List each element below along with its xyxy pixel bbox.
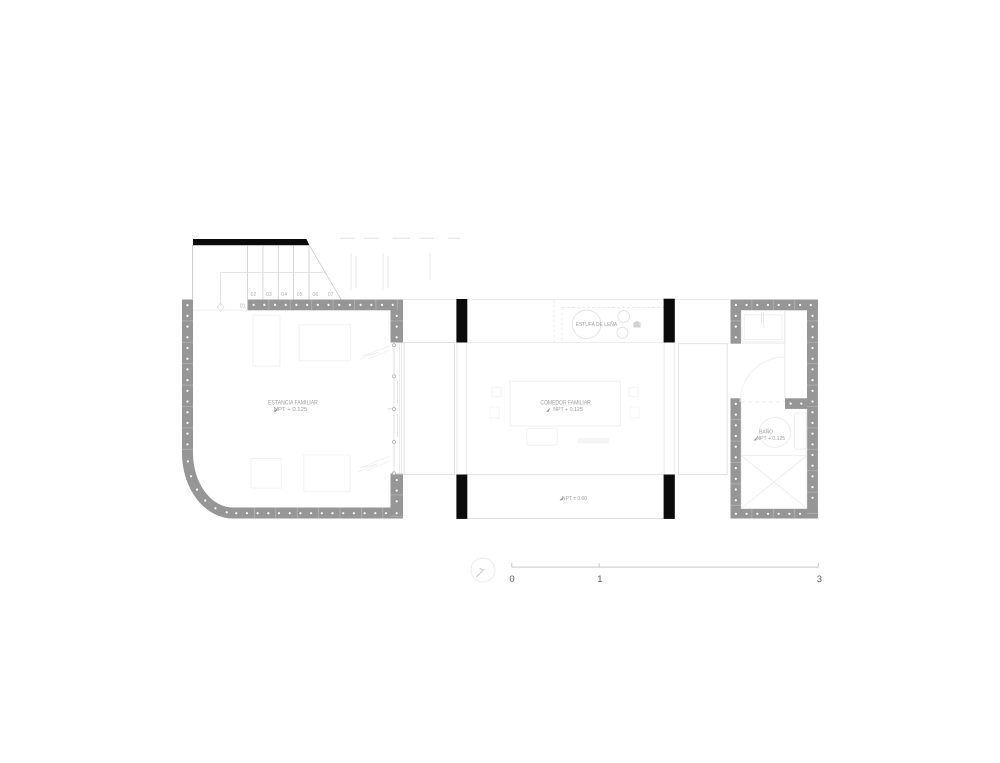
svg-text:NPT + 0.125: NPT + 0.125 [756, 436, 785, 442]
svg-text:3: 3 [817, 574, 822, 585]
svg-text:05: 05 [297, 292, 303, 298]
svg-text:0: 0 [509, 574, 514, 585]
svg-text:1: 1 [597, 574, 602, 585]
svg-text:ESTUFA DE LEÑA: ESTUFA DE LEÑA [576, 321, 618, 328]
svg-text:NPT + 0.125: NPT + 0.125 [274, 407, 308, 413]
svg-text:03: 03 [266, 292, 272, 298]
svg-text:NPT + 0.125: NPT + 0.125 [553, 407, 583, 413]
svg-text:ESTANCIA FAMILIAR: ESTANCIA FAMILIAR [268, 399, 318, 406]
svg-text:07: 07 [328, 292, 334, 298]
svg-text:01: 01 [240, 303, 246, 309]
svg-text:06: 06 [313, 292, 319, 298]
svg-text:02: 02 [251, 292, 257, 298]
svg-text:NPT ± 0.00: NPT ± 0.00 [562, 496, 587, 502]
svg-text:04: 04 [281, 292, 287, 298]
svg-text:COMEDOR FAMILIAR: COMEDOR FAMILIAR [540, 399, 591, 406]
svg-text:BAÑO: BAÑO [759, 428, 773, 435]
